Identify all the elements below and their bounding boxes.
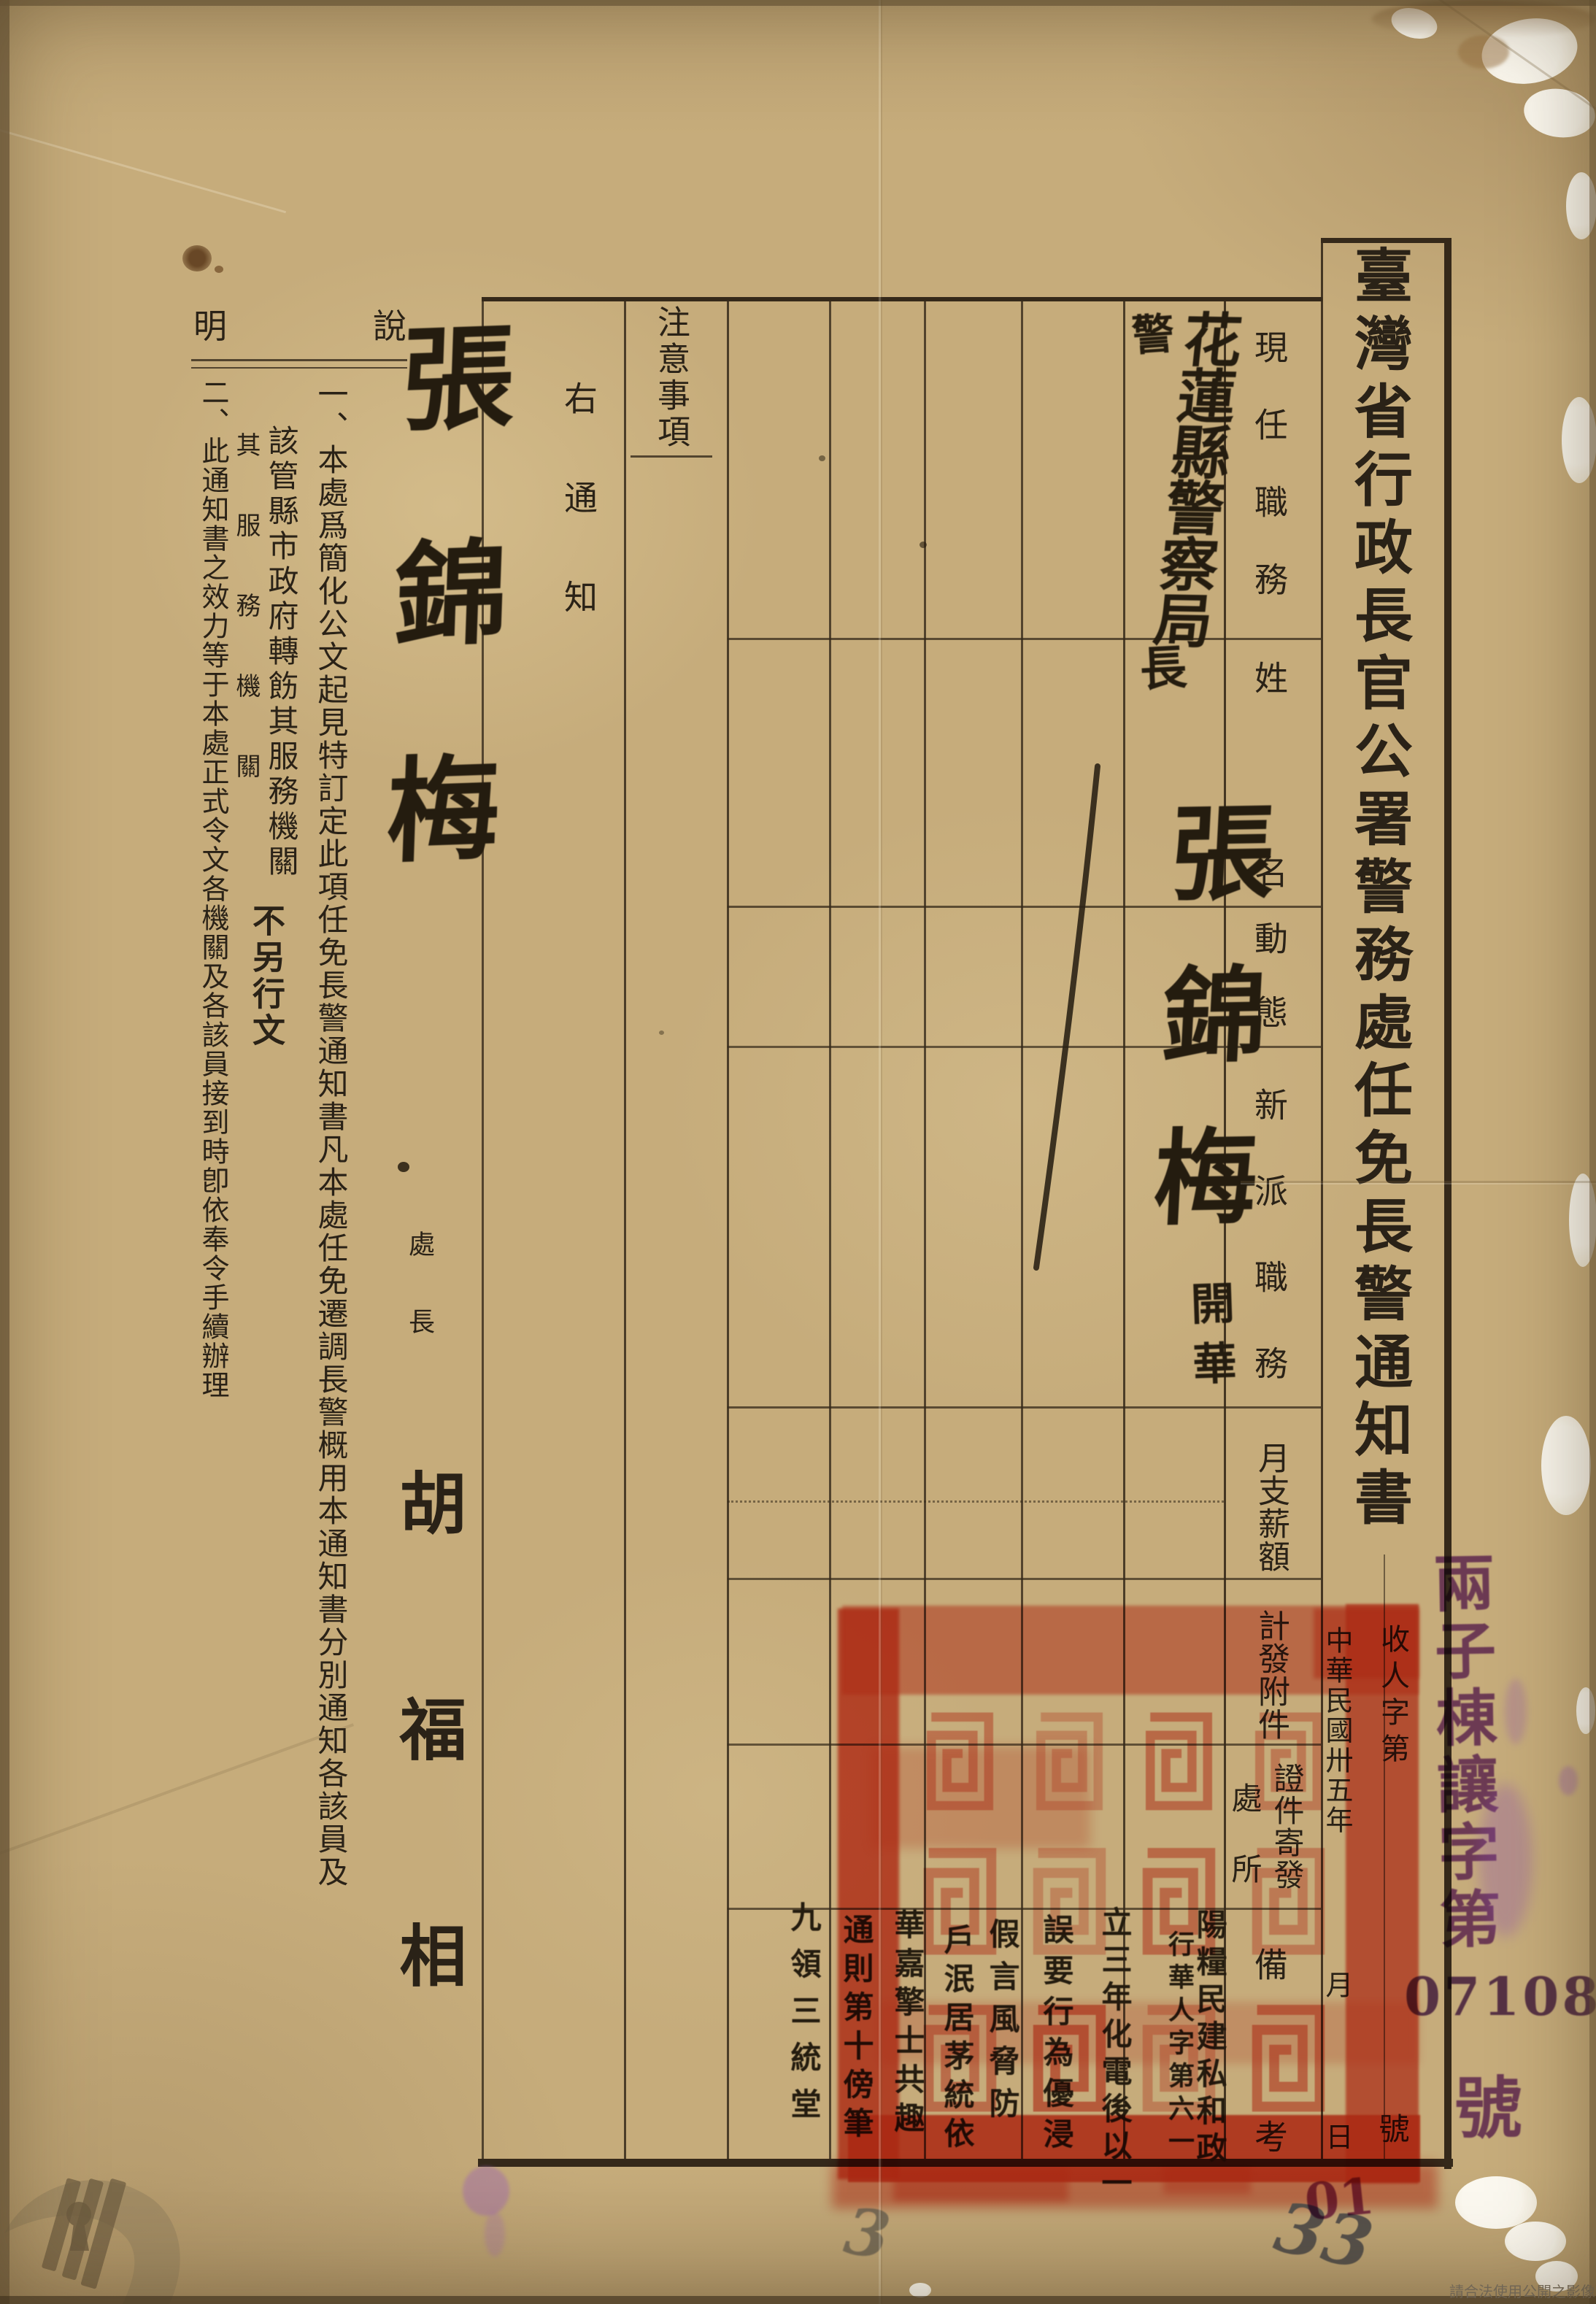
- shuoming-header: 說 明: [193, 309, 406, 343]
- notes-column-header: 注意事項: [655, 305, 687, 451]
- grid-line: [727, 299, 729, 2160]
- purple-smudge: [1505, 1679, 1527, 1744]
- torn-patch: [1455, 2176, 1537, 2229]
- handwritten-position-prefix: 警: [1127, 311, 1172, 356]
- purple-filing-stamp-number: 07108: [1404, 1970, 1596, 2023]
- handwritten-slash-mark: [1028, 760, 1108, 1279]
- torn-patch: [1576, 1687, 1595, 1734]
- purple-smudge: [1479, 1784, 1533, 1937]
- ink-dot: [819, 455, 825, 461]
- pencil-number-3: 3: [841, 2198, 894, 2268]
- crease-line: [1241, 1181, 1596, 1183]
- scan-usage-notice: 請合法使用公開之影像: [1449, 2284, 1595, 2299]
- grid-line: [624, 299, 626, 2160]
- seal-glyph: [905, 1699, 1014, 1823]
- instruction-item1-small-note: 其服務機關: [234, 432, 258, 833]
- grid-line: [728, 638, 1321, 640]
- purple-mark-digits: 01: [1303, 2171, 1376, 2228]
- brown-spot: [182, 245, 212, 271]
- right-notice-label: 右通知: [562, 381, 595, 679]
- signer-name: 胡福相: [394, 1468, 461, 2147]
- seal-glyph: [1124, 1823, 1233, 1980]
- torn-patch: [1566, 172, 1596, 239]
- grid-line: [482, 297, 1322, 301]
- instruction-item1-column1: 一、本處爲簡化公文起見特訂定此項任免長警通知書凡本處任免遷調長警概用本通知書分別…: [315, 378, 346, 1889]
- ink-dot: [398, 1162, 409, 1172]
- torn-patch: [1541, 1416, 1591, 1515]
- edge-shadow-bottom: [0, 2296, 1596, 2304]
- seal-glyph: [1233, 1823, 1343, 1980]
- handwritten-entry-name: 張錦梅: [1139, 798, 1268, 1286]
- edge-shadow-top: [0, 0, 1596, 6]
- brown-spot: [215, 266, 223, 273]
- purple-smudge: [1559, 1766, 1578, 1795]
- seal-glyph: [1124, 1980, 1233, 2137]
- seal-glyph: [905, 1980, 1014, 2137]
- seal-glyph: [1014, 1699, 1124, 1823]
- archive-watermark-logo: [0, 2147, 204, 2304]
- seal-spatter: [1163, 2165, 1251, 2194]
- notes-header-underline: [631, 455, 712, 458]
- header-monthly-salary: 月支薪額: [1254, 1441, 1287, 1573]
- torn-patch: [1562, 397, 1596, 483]
- seal-glyph: [905, 1823, 1014, 1980]
- shuoming-char-left: 明: [193, 309, 227, 343]
- purple-blotch: [485, 2211, 505, 2257]
- seal-script-row-upper: [905, 1699, 1343, 1823]
- handwritten-position-suffix: 長: [1134, 642, 1183, 691]
- torn-patch: [1569, 1174, 1596, 1267]
- torn-patch: [909, 2283, 931, 2297]
- remark-note-column: 九領三統堂: [788, 1901, 819, 2135]
- seal-glyph: [1124, 1699, 1233, 1823]
- torn-patch: [1521, 85, 1596, 142]
- ink-dot: [920, 542, 927, 548]
- seal-glyph: [1014, 1823, 1124, 1980]
- shuoming-underline-2: [191, 367, 407, 369]
- red-official-seal: [849, 1604, 1426, 2184]
- handwritten-status-note: 開華: [1186, 1280, 1234, 1401]
- seal-glyph: [1233, 1980, 1343, 2137]
- signer-title: 處長: [406, 1230, 432, 1385]
- header-current-position: 現任職務: [1252, 330, 1286, 639]
- edge-shadow-right: [1589, 0, 1596, 2304]
- instruction-item1-column2: 該管縣市政府轉飭其服務機關: [266, 425, 296, 880]
- ink-dot: [659, 1030, 664, 1035]
- edge-shadow-left: [0, 0, 9, 2304]
- edge-stain: [1458, 35, 1509, 69]
- seal-glyph: [1233, 1699, 1343, 1823]
- grid-line: [829, 299, 831, 2160]
- handwritten-addressee-name: 張錦梅: [372, 317, 508, 968]
- purple-filing-stamp-suffix: 號: [1449, 2073, 1516, 2140]
- crease-line: [0, 125, 286, 213]
- document-title: 臺灣省行政長官公署警務處任免長警通知書: [1350, 245, 1408, 1535]
- seal-smudge-corner: [1314, 1608, 1419, 1679]
- seal-spatter: [893, 2168, 1068, 2201]
- grid-line: [728, 1406, 1321, 1409]
- crease-line: [1241, 1183, 1596, 1184]
- handwritten-current-position: 花蓮縣警察局: [1147, 309, 1241, 647]
- dotted-rule: [728, 1500, 1224, 1503]
- instruction-item1-bold-note: 不另行文: [250, 904, 282, 1049]
- shuoming-underline-1: [191, 359, 407, 361]
- instruction-item2: 二、此通知書之效力等于本處正式令文各機關及各該員接到時卽依奉令手續辦理: [199, 378, 227, 1400]
- torn-patch: [1505, 2222, 1566, 2261]
- purple-blotch: [463, 2166, 509, 2216]
- seal-script-grid: [905, 1823, 1343, 2137]
- seal-glyph: [1014, 1980, 1124, 2137]
- grid-line: [1321, 238, 1452, 243]
- scanned-document-page: 臺灣省行政長官公署警務處任免長警通知書 現任職務 姓名 動態 新派職務 月支薪額…: [0, 0, 1596, 2304]
- grid-line: [728, 1578, 1321, 1580]
- edge-stain: [1372, 0, 1596, 38]
- crease-line: [0, 1723, 354, 1856]
